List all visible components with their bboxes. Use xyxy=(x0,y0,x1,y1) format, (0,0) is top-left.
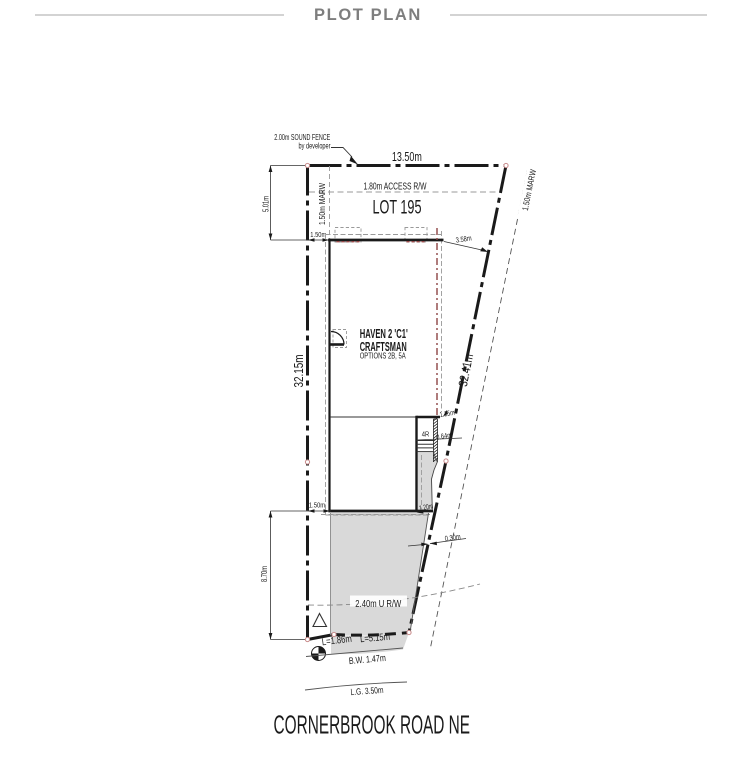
svg-text:5.01m: 5.01m xyxy=(262,196,271,212)
svg-text:LOT 195: LOT 195 xyxy=(373,197,422,219)
svg-text:by developer: by developer xyxy=(299,141,331,151)
svg-text:1.50m: 1.50m xyxy=(309,503,326,510)
svg-text:32.15m: 32.15m xyxy=(292,355,306,388)
svg-text:1.80m ACCESS R/W: 1.80m ACCESS R/W xyxy=(364,182,427,193)
svg-text:13.50m: 13.50m xyxy=(392,150,422,164)
svg-text:HAVEN 2 'C1': HAVEN 2 'C1' xyxy=(360,327,408,341)
svg-text:1.50m: 1.50m xyxy=(310,232,326,239)
svg-text:CORNERBROOK ROAD NE: CORNERBROOK ROAD NE xyxy=(274,712,471,740)
svg-text:PLOT PLAN: PLOT PLAN xyxy=(314,6,422,24)
svg-text:2.40m U R/W: 2.40m U R/W xyxy=(355,598,401,610)
svg-text:OPTIONS 2B, 5A: OPTIONS 2B, 5A xyxy=(360,351,406,361)
svg-text:4R: 4R xyxy=(422,430,430,439)
svg-text:8.70m: 8.70m xyxy=(260,566,269,582)
svg-text:1.50m MARW: 1.50m MARW xyxy=(317,183,327,225)
